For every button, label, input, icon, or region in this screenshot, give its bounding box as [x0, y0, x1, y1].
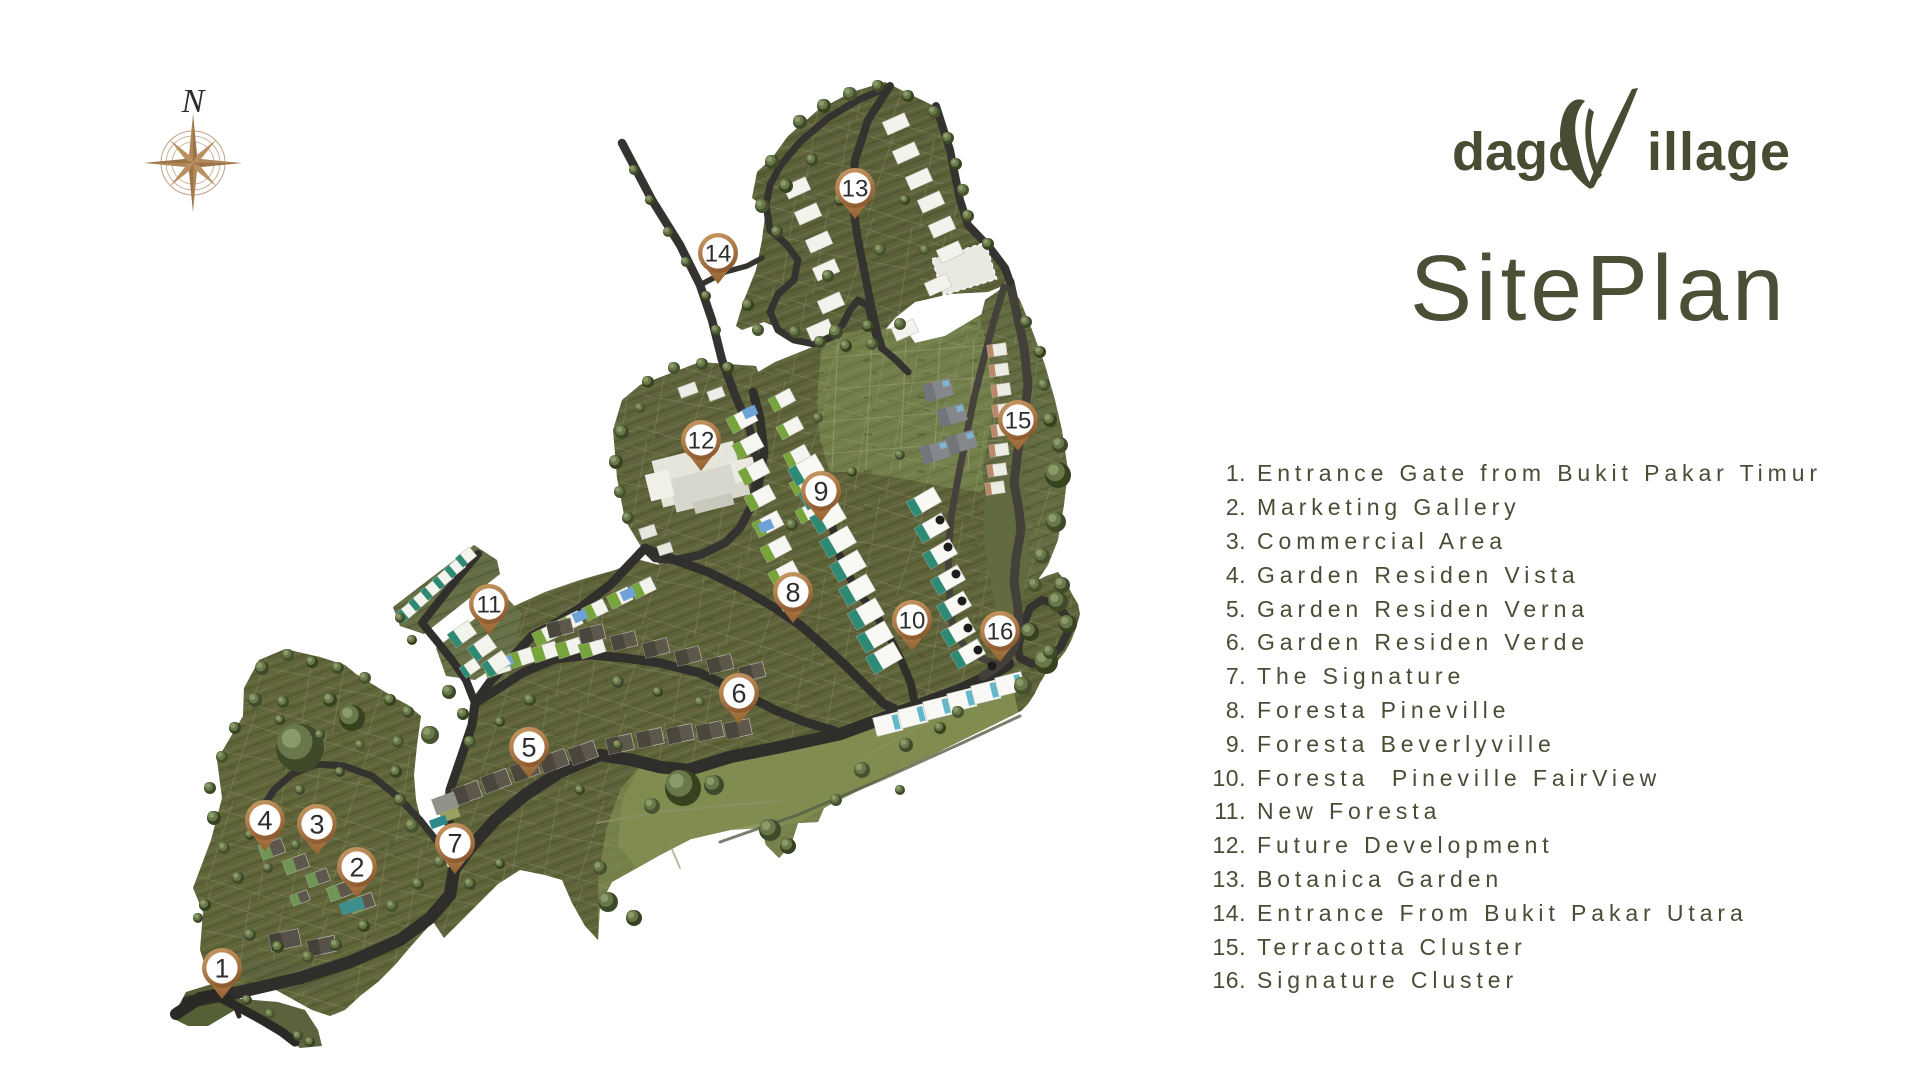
svg-text:14: 14 [705, 241, 732, 268]
svg-text:N: N [181, 83, 207, 120]
svg-text:1: 1 [214, 954, 229, 984]
svg-text:16: 16 [987, 619, 1014, 646]
svg-text:5: 5 [521, 733, 536, 763]
svg-text:10: 10 [899, 608, 926, 635]
svg-text:15: 15 [1005, 408, 1032, 435]
svg-text:8: 8 [785, 578, 800, 608]
svg-text:11: 11 [477, 592, 502, 619]
svg-text:7: 7 [447, 829, 462, 859]
svg-text:13: 13 [842, 176, 869, 203]
svg-text:2: 2 [349, 853, 364, 883]
svg-text:12: 12 [688, 428, 715, 455]
svg-text:6: 6 [731, 679, 746, 709]
svg-text:9: 9 [813, 477, 828, 507]
svg-text:3: 3 [309, 810, 324, 840]
svg-text:4: 4 [257, 806, 272, 836]
